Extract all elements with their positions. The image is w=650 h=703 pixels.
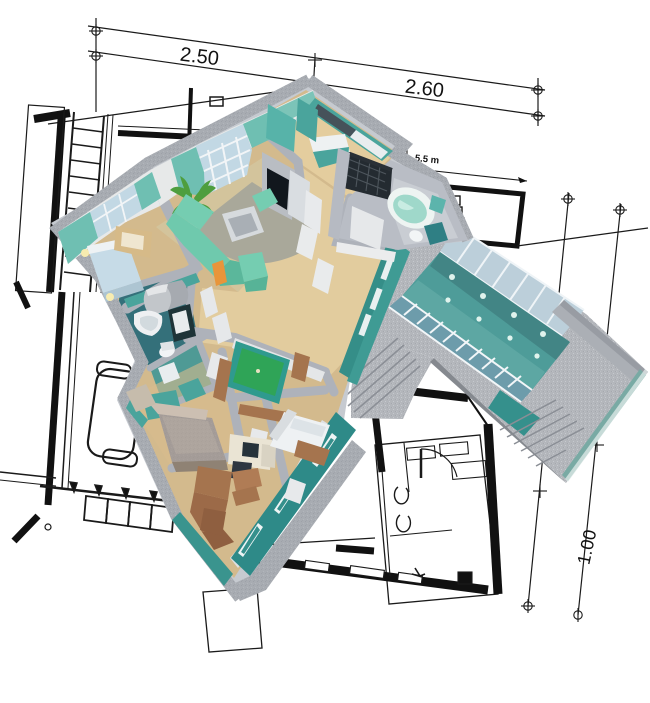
svg-text:2.50: 2.50 [179, 44, 220, 71]
svg-text:2.60: 2.60 [404, 76, 445, 103]
